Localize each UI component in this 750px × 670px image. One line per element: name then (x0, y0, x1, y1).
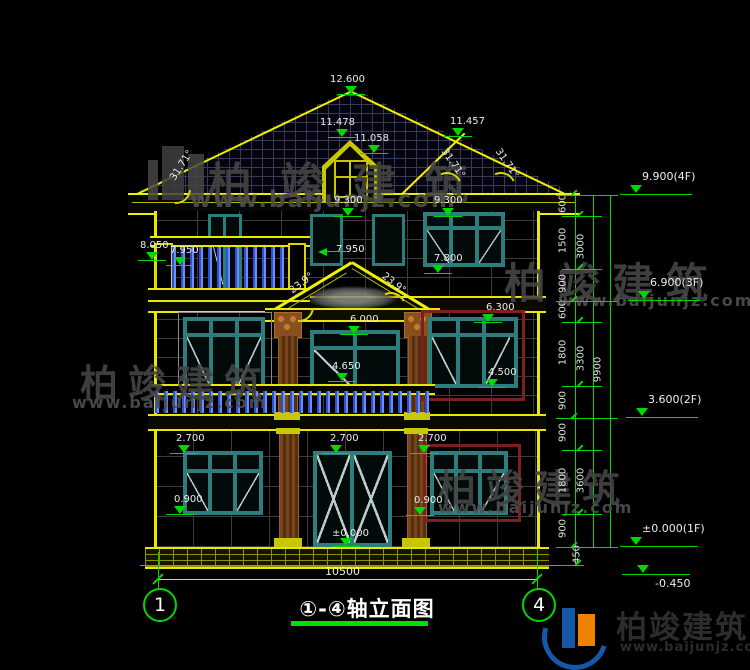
window-1f-left (183, 451, 263, 515)
elevation-arrow-line (138, 260, 166, 261)
dimension-label: 0.900 (174, 494, 203, 505)
dimension-label: 4.650 (332, 361, 361, 372)
chain-tick (560, 565, 584, 566)
dimension-label: 11.478 (320, 117, 355, 128)
elevation-arrow-line (410, 453, 438, 454)
elevation-arrow (368, 145, 380, 153)
elevation-arrow-line (340, 334, 368, 335)
elevation-arrow (174, 506, 186, 514)
elevation-arrow (486, 379, 498, 387)
chain-dim-label: 3000 (576, 225, 587, 269)
elevation-arrow-line (324, 251, 346, 252)
elevation-arrow-line (337, 94, 365, 95)
logo-building-icon (562, 608, 575, 648)
level-marker (630, 185, 642, 193)
elevation-arrow-line (478, 387, 506, 388)
chain-dim-label: 9900 (593, 348, 604, 392)
elevation-arrow-line (474, 322, 502, 323)
chain-tick (562, 514, 602, 515)
dimension-label: 7.800 (434, 253, 463, 264)
elevation-arrow (418, 445, 430, 453)
center-door-leaf-right-3f (372, 214, 405, 266)
elevation-arrow-line (328, 137, 356, 138)
level-label: 3.600(2F) (648, 394, 701, 405)
level-line (620, 546, 698, 547)
elevation-arrow (345, 86, 357, 94)
level-marker (630, 537, 642, 545)
level-label: -0.450 (655, 578, 690, 589)
elevation-arrow (432, 265, 444, 273)
dimension-label: 0.900 (414, 495, 443, 506)
level-line (626, 417, 698, 418)
brand-logo: 柏竣建筑 www.baijunjz.com (540, 596, 750, 668)
elevation-arrow-line (406, 515, 434, 516)
chain-tick (562, 269, 602, 270)
elevation-arrow (348, 326, 360, 334)
elevation-arrow (442, 208, 454, 216)
overall-dim-line (158, 579, 538, 580)
dimension-label: 11.457 (450, 116, 485, 127)
elevation-arrow-line (360, 153, 388, 154)
elevation-arrow-line (444, 136, 472, 137)
elevation-arrow (178, 445, 190, 453)
elevation-arrow (452, 128, 464, 136)
dimension-label: 6.000 (350, 314, 379, 325)
cornice-2f-1f (148, 414, 546, 431)
watermark-url: www.baijunjz.com (438, 498, 633, 517)
elevation-arrow (414, 507, 426, 515)
dimension-label: 11.058 (354, 133, 389, 144)
chain-dim-label: 450 (572, 533, 583, 577)
dimension-label: 2.700 (176, 433, 205, 444)
elevation-arrow (336, 129, 348, 137)
chain-tick (562, 322, 602, 323)
chain-dim-label: 3600 (576, 459, 587, 503)
chain-dim-label: 1500 (558, 219, 569, 263)
axis-bubble-1: 1 (143, 588, 177, 622)
chain-tick (562, 386, 602, 387)
dimension-label: 4.500 (488, 367, 517, 378)
dimension-label: 2.700 (418, 433, 447, 444)
elevation-arrow-line (334, 216, 362, 217)
dimension-label: 2.700 (330, 433, 359, 444)
elevation-arrow-line (166, 265, 194, 266)
dimension-label: 7.950 (336, 244, 365, 255)
level-line (620, 194, 692, 195)
dimension-label: 12.600 (330, 74, 365, 85)
chain-tick (562, 216, 602, 217)
dimension-label: 9.300 (334, 195, 363, 206)
level-marker (638, 291, 650, 299)
dimension-label: 6.300 (486, 302, 515, 313)
chain-dim-label: 1800 (558, 459, 569, 503)
watermark-url: www.baijunjz.com (72, 393, 267, 412)
chain-tick (556, 195, 618, 196)
elevation-arrow-line (170, 453, 198, 454)
elevation-arrow-line (322, 453, 350, 454)
elevation-arrow-line (328, 381, 356, 382)
center-door-leaf-left-3f (310, 214, 343, 266)
level-label: 6.900(3F) (650, 277, 703, 288)
level-label: ±0.000(1F) (642, 523, 705, 534)
dimension-label: 7.950 (170, 245, 199, 256)
dimension-label: 8.050 (140, 240, 169, 251)
chain-tick (556, 418, 618, 419)
elevation-arrow-line (166, 514, 194, 515)
level-line (628, 300, 700, 301)
chain-dim-label: 1800 (558, 331, 569, 375)
elevation-arrow-left (318, 248, 327, 256)
elevation-arrow-line (332, 546, 360, 547)
level-marker (636, 408, 648, 416)
elevation-arrow-line (424, 273, 452, 274)
title-underline (291, 621, 428, 626)
column-shaft-1f-left (279, 434, 299, 538)
level-line (622, 574, 690, 575)
chain-tick (556, 547, 618, 548)
level-label: 9.900(4F) (642, 171, 695, 182)
elevation-arrow (174, 257, 186, 265)
logo-url-text: www.baijunjz.com (620, 640, 750, 655)
watermark-url: www.baijunjz.com (190, 187, 457, 213)
elevation-arrow (342, 208, 354, 216)
overall-dim-label: 10500 (325, 566, 360, 577)
chain-dim-label: 3300 (576, 337, 587, 381)
elevation-arrow (340, 538, 352, 546)
chain-tick (556, 301, 618, 302)
elevation-arrow (336, 373, 348, 381)
chain-dim-label: 600 (558, 288, 569, 332)
elevation-drawing: 10500 1 4 ①-④轴立面图 柏竣建筑 www.baijunjz.com … (0, 0, 750, 670)
level-marker (637, 565, 649, 573)
drawing-title: ①-④轴立面图 (282, 593, 452, 623)
elevation-arrow (482, 314, 494, 322)
logo-swoosh-icon (530, 592, 619, 670)
elevation-arrow-line (434, 216, 462, 217)
chain-tick (562, 450, 602, 451)
elevation-arrow (330, 445, 342, 453)
elevation-arrow (146, 252, 158, 260)
